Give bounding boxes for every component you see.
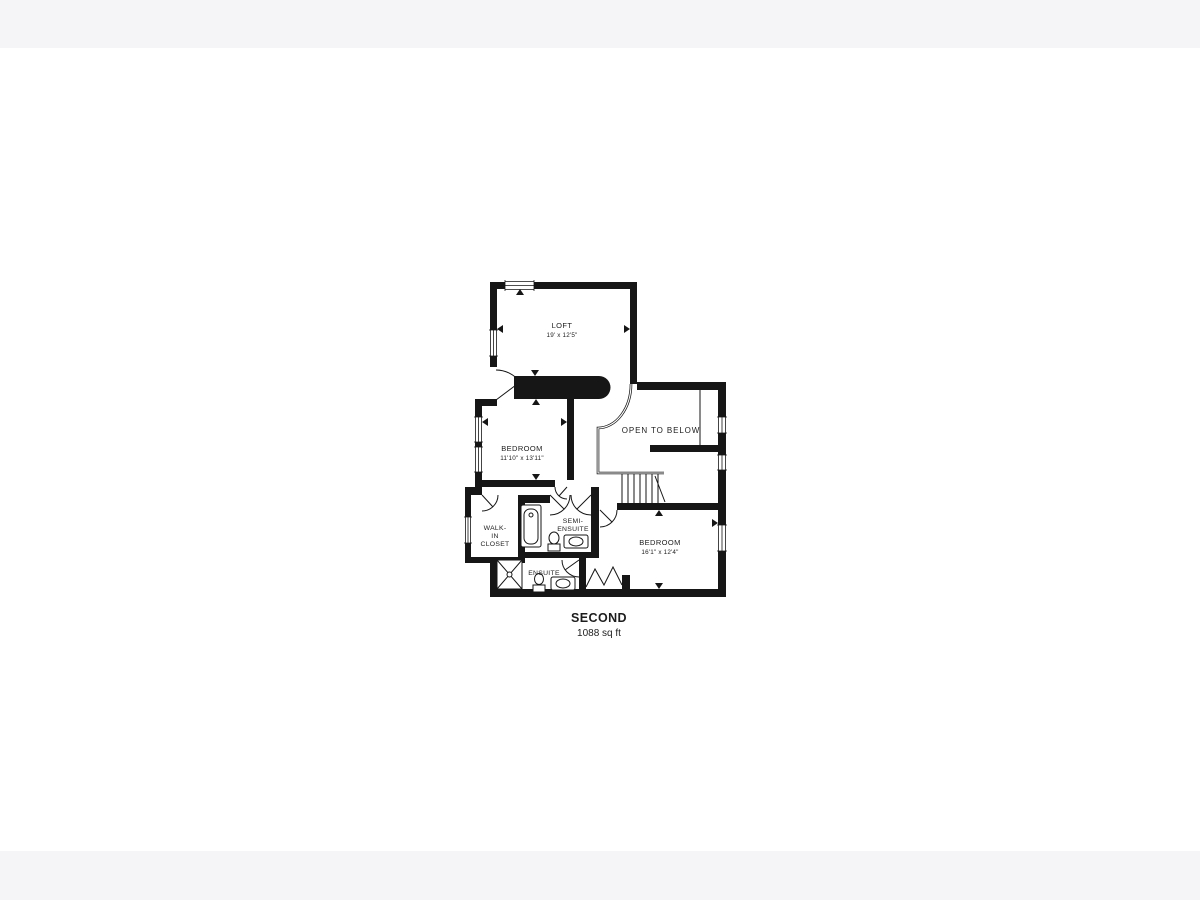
- window: [474, 417, 483, 442]
- door-arc: [562, 560, 579, 577]
- floor-area: 1088 sq ft: [577, 628, 621, 639]
- window: [474, 447, 483, 472]
- bedroom2-label: BEDROOM: [639, 538, 681, 547]
- walk-in-closet-label-3: CLOSET: [481, 541, 510, 548]
- loft-label: LOFT: [552, 321, 573, 330]
- floor-plan-drawing: LOFT 19' x 12'5" OPEN TO BELOW BEDROOM 1…: [462, 272, 742, 650]
- window: [505, 280, 534, 291]
- bedroom1-dims: 11'10" x 13'11": [500, 455, 544, 462]
- door-arc: [550, 495, 570, 515]
- ensuite-label: ENSUITE: [528, 570, 560, 577]
- toilet: [551, 577, 575, 590]
- window: [717, 417, 727, 433]
- walk-in-closet-label-1: WALK-: [484, 525, 507, 532]
- stairs: [622, 474, 665, 503]
- bedroom2-dims: 16'1" x 12'4": [641, 549, 678, 556]
- semi-ensuite-label-1: SEMI-: [563, 518, 583, 525]
- door-arc: [555, 487, 567, 499]
- walk-in-closet-label-2: IN: [491, 533, 498, 540]
- stairwell: [598, 384, 700, 503]
- bedroom1-label: BEDROOM: [501, 444, 543, 453]
- bathtub: [521, 505, 541, 547]
- window: [464, 517, 472, 543]
- door-arc: [600, 510, 617, 527]
- top-letterbox-band: [0, 0, 1200, 48]
- walls: [465, 282, 726, 597]
- window: [717, 525, 727, 551]
- floor-title: SECOND: [571, 611, 627, 625]
- window: [717, 455, 727, 470]
- sink-pedestal: [548, 532, 560, 551]
- door-arc: [482, 495, 498, 511]
- door-arc: [571, 495, 591, 515]
- bottom-letterbox-band: [0, 851, 1200, 900]
- window: [489, 330, 498, 356]
- toilet: [564, 535, 588, 548]
- bifold-closet-doors: [586, 567, 622, 587]
- dimension-ticks: [482, 289, 718, 589]
- loft-dims: 19' x 12'5": [547, 332, 578, 339]
- open-to-below-label: OPEN TO BELOW: [622, 426, 701, 435]
- shower: [497, 560, 522, 589]
- semi-ensuite-label-2: ENSUITE: [557, 526, 589, 533]
- listing-photo-canvas: LOFT 19' x 12'5" OPEN TO BELOW BEDROOM 1…: [0, 0, 1200, 900]
- floor-plan: LOFT 19' x 12'5" OPEN TO BELOW BEDROOM 1…: [462, 272, 742, 650]
